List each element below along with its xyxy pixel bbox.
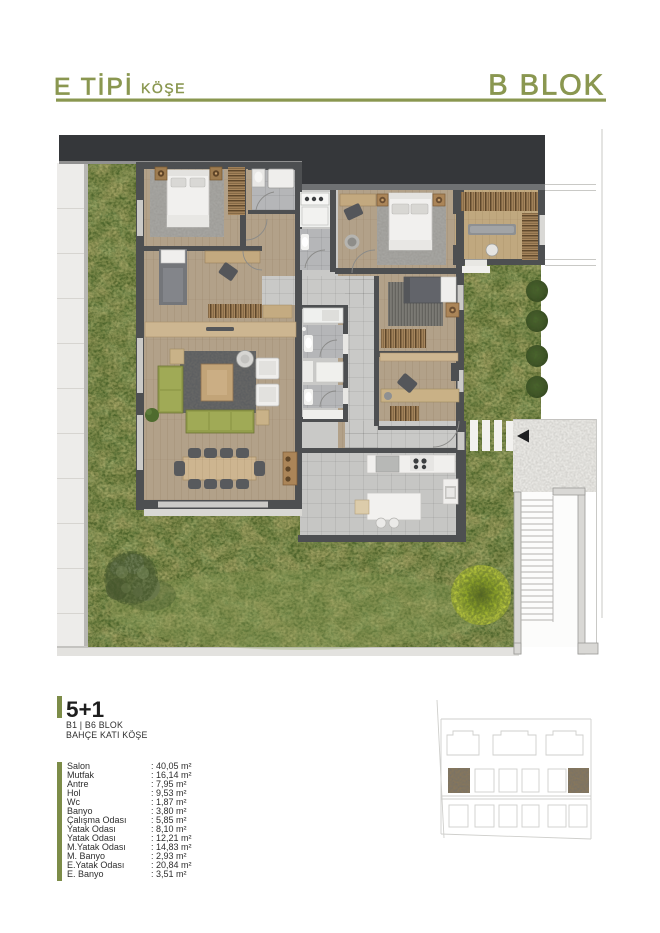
svg-text:BAHÇE KATI KÖŞE: BAHÇE KATI KÖŞE <box>66 730 148 740</box>
svg-text:E. Banyo: E. Banyo <box>67 869 104 879</box>
svg-text:5+1: 5+1 <box>66 697 104 722</box>
svg-text:: 3,51 m²: : 3,51 m² <box>151 869 187 879</box>
svg-text:KÖŞE: KÖŞE <box>141 79 186 96</box>
svg-text:E TİPİ: E TİPİ <box>54 74 134 101</box>
svg-text:B1 | B6 BLOK: B1 | B6 BLOK <box>66 720 123 730</box>
svg-text:B BLOK: B BLOK <box>488 70 605 102</box>
